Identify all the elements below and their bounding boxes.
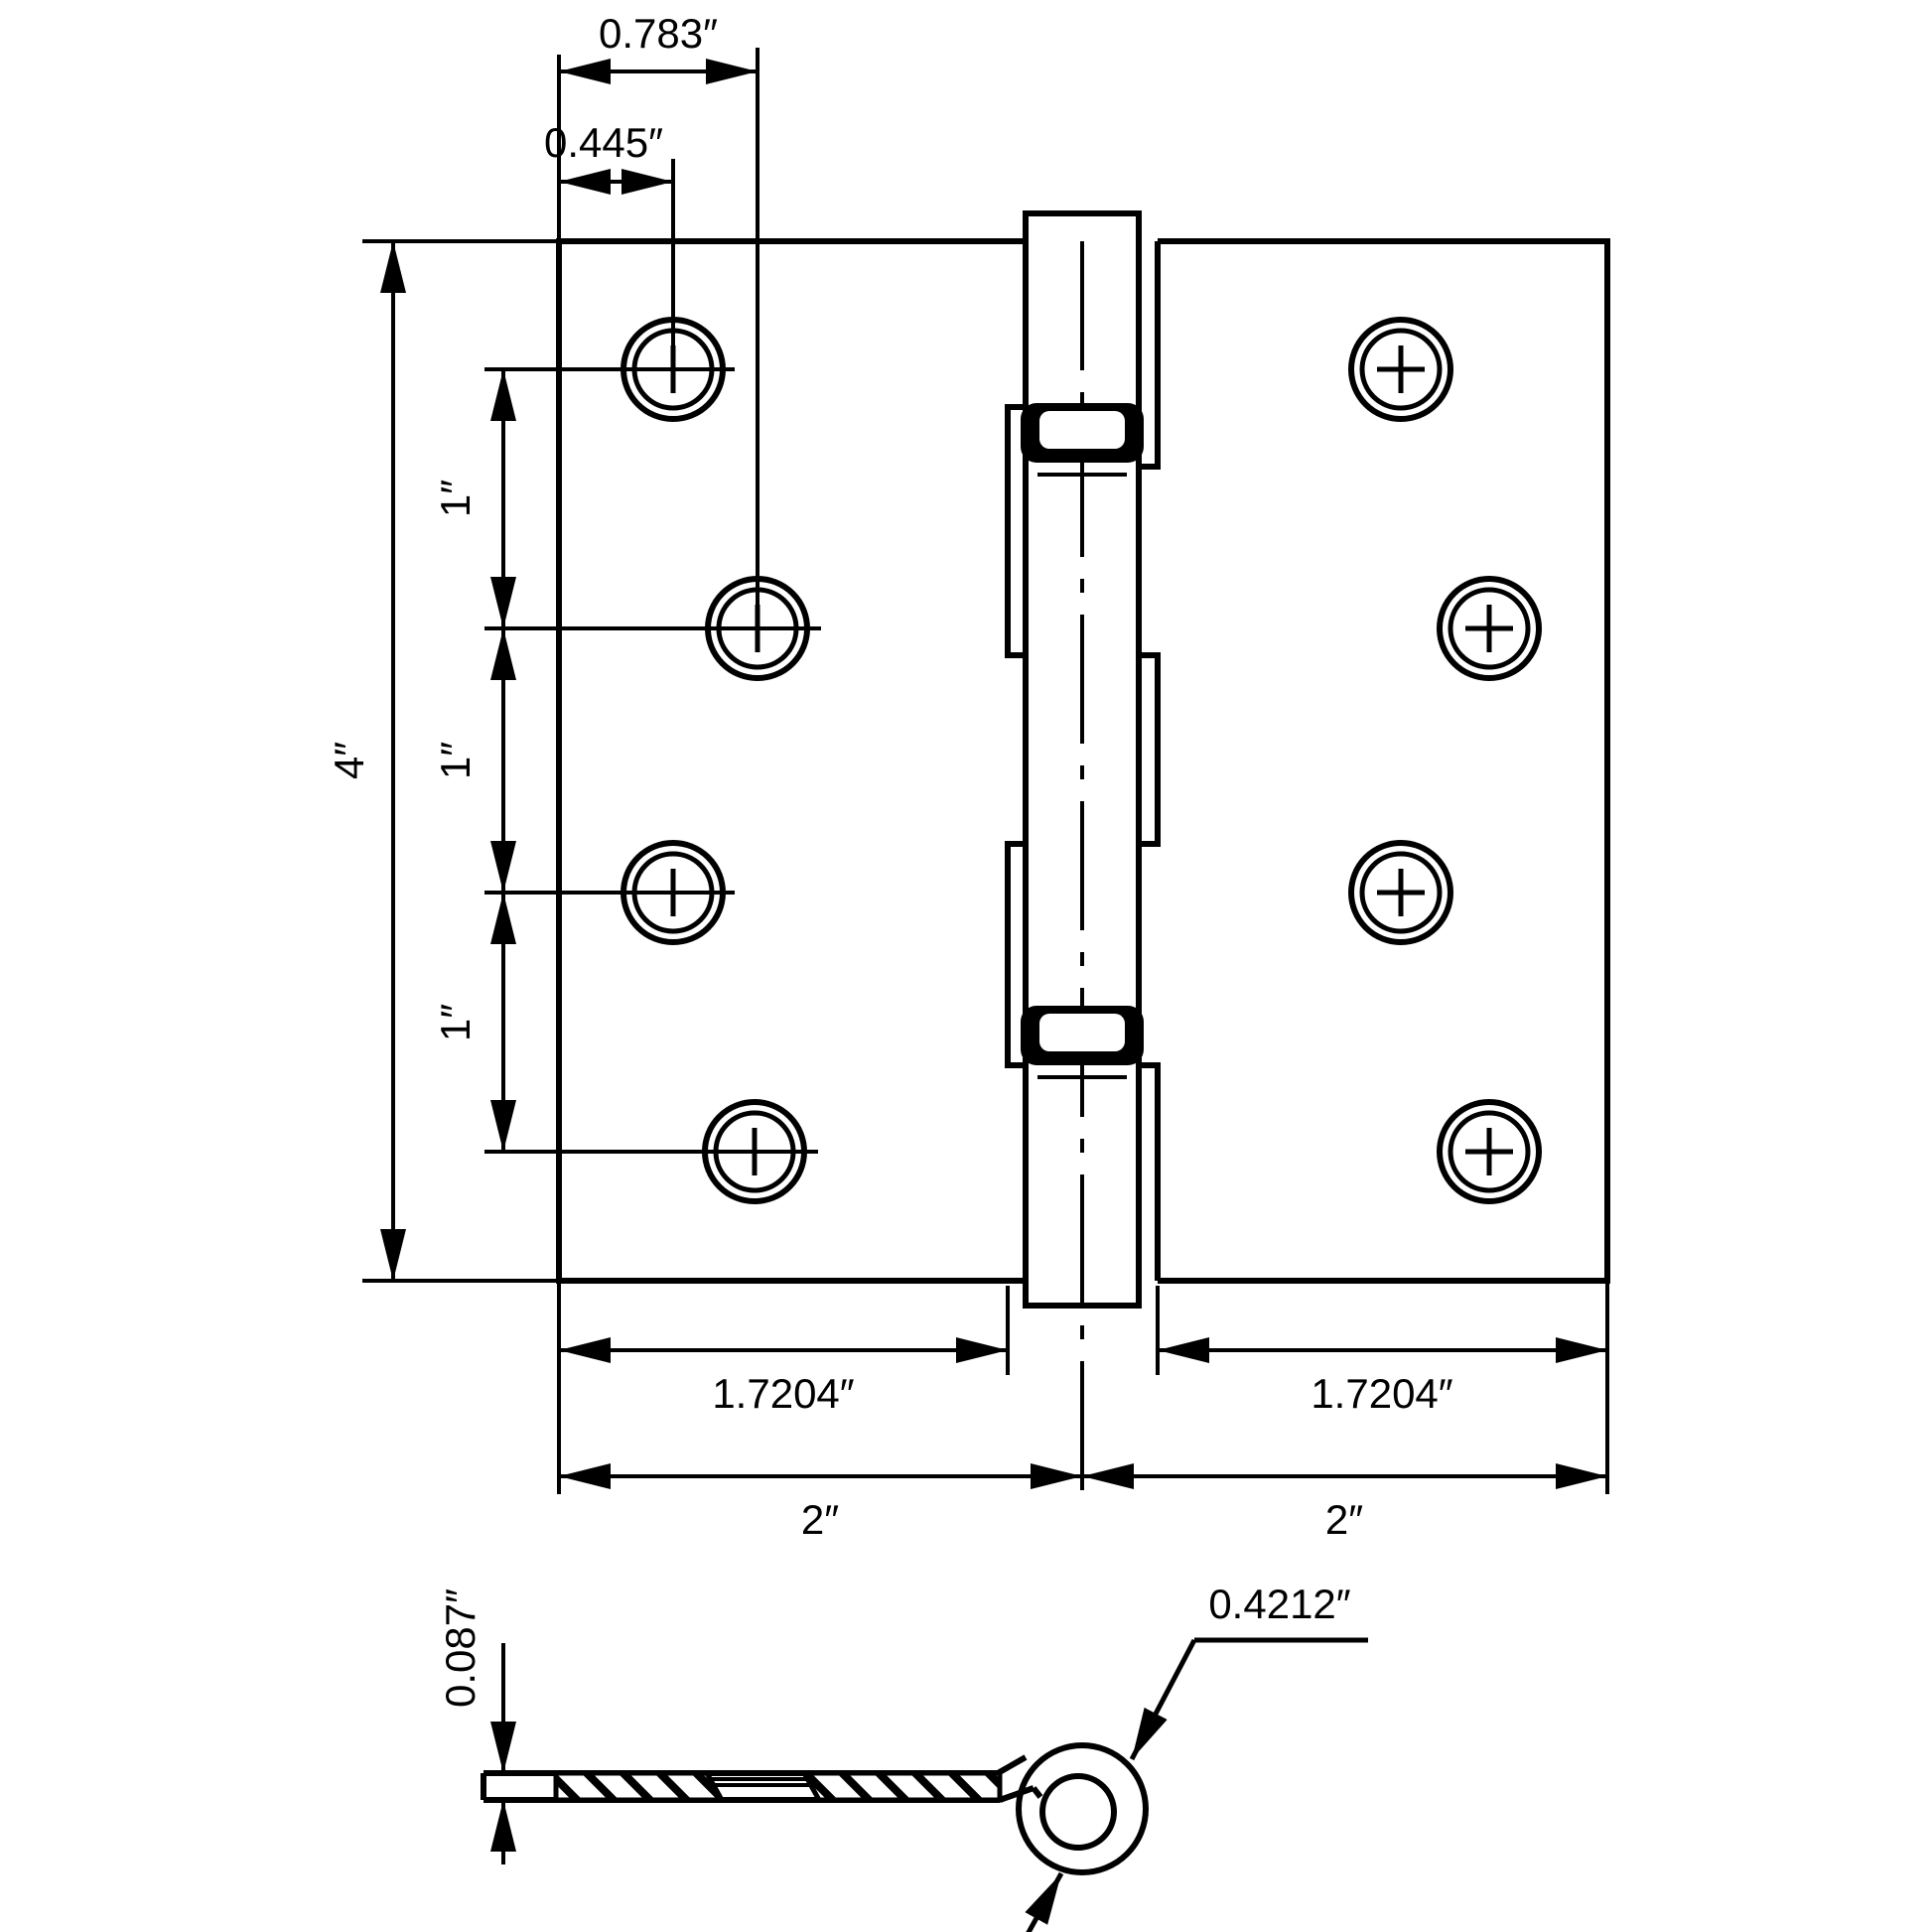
dim-label-2in-left: 2″ xyxy=(801,1496,839,1543)
dim-label-4in: 4″ xyxy=(326,742,372,779)
screw-hole xyxy=(1351,320,1450,419)
section-hatch-right xyxy=(804,1773,1000,1800)
screw-hole xyxy=(1351,843,1450,942)
curl-transition-top xyxy=(998,1757,1026,1773)
dim-label-2in-right: 2″ xyxy=(1325,1496,1363,1543)
leader-arrow xyxy=(1132,1640,1194,1759)
dimension-hole-spacing: 1″ 1″ 1″ xyxy=(432,369,503,1152)
pin-leader-arrow xyxy=(1027,1873,1061,1932)
dim-label-17204-right: 1.7204″ xyxy=(1311,1370,1452,1417)
dim-label-0783: 0.783″ xyxy=(599,10,718,57)
screw-holes-right xyxy=(1351,320,1539,1201)
dimension-thickness: 0.087″ xyxy=(437,1588,503,1864)
dim-label-0087: 0.087″ xyxy=(437,1588,483,1708)
dim-label-1in-b: 1″ xyxy=(432,742,479,779)
dim-label-1in-c: 1″ xyxy=(432,1004,479,1041)
leaf-cross-section xyxy=(483,1773,1000,1800)
hinge-front-view: 0.783″ 0.445″ 4″ 1″ 1″ 1″ xyxy=(326,10,1607,1543)
dim-label-0445: 0.445″ xyxy=(544,119,663,166)
dim-label-1in-a: 1″ xyxy=(432,480,479,517)
dimension-knuckle: 0.4212″ xyxy=(1132,1581,1368,1759)
hinge-side-view: 0.087″ 0.4212″ xyxy=(437,1581,1368,1932)
barrel-top-cap xyxy=(1026,213,1139,241)
right-leaf xyxy=(1158,241,1607,1281)
knuckle-curl xyxy=(998,1745,1146,1872)
dim-label-04212: 0.4212″ xyxy=(1208,1581,1350,1627)
screw-holes-left xyxy=(484,320,821,1201)
screw-hole xyxy=(1440,1102,1539,1201)
section-hatch-left xyxy=(556,1773,722,1800)
hinge-drawing-canvas: 0.783″ 0.445″ 4″ 1″ 1″ 1″ xyxy=(0,0,1932,1932)
curl-inner-circle xyxy=(1042,1776,1114,1848)
dim-label-17204-left: 1.7204″ xyxy=(712,1370,854,1417)
technical-drawing: 0.783″ 0.445″ 4″ 1″ 1″ 1″ xyxy=(0,0,1932,1932)
screw-hole xyxy=(1440,579,1539,678)
